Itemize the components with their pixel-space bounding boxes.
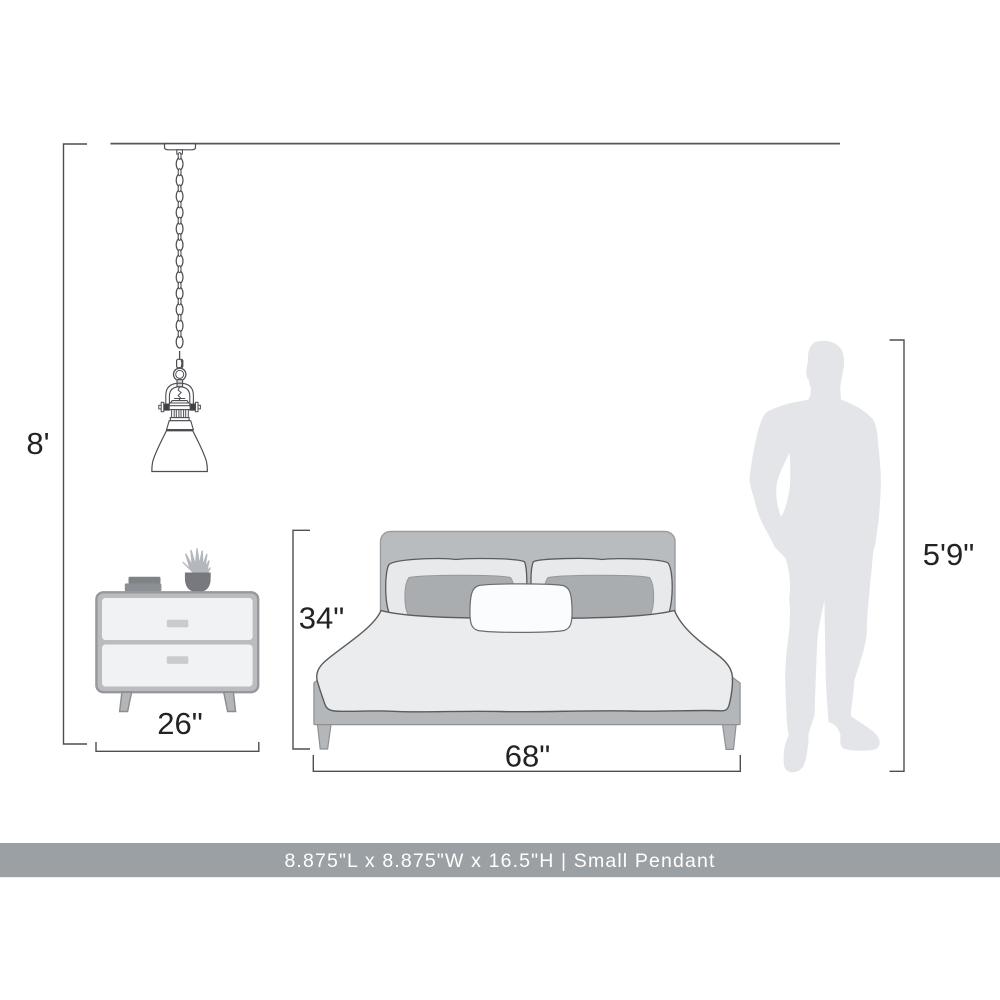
svg-text:34": 34" — [299, 601, 345, 636]
svg-text:8': 8' — [26, 426, 49, 461]
svg-text:68": 68" — [505, 739, 551, 774]
svg-text:5'9": 5'9" — [923, 537, 974, 572]
svg-text:8.875"L x 8.875"W x 16.5"H | S: 8.875"L x 8.875"W x 16.5"H | Small Penda… — [284, 850, 715, 872]
svg-text:26": 26" — [157, 706, 203, 741]
